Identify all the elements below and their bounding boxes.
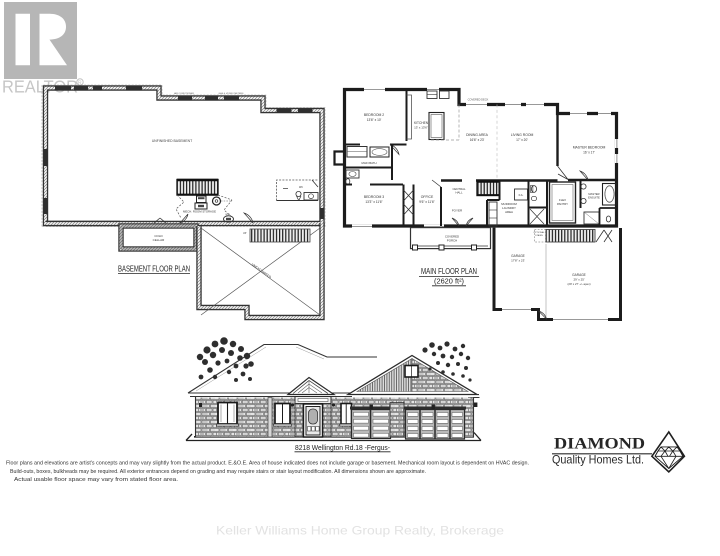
svg-text:AREA: AREA [505, 210, 513, 214]
svg-text:13'3" x 11'6": 13'3" x 11'6" [365, 200, 382, 204]
svg-text:17' x 20': 17' x 20' [516, 138, 528, 142]
svg-text:GAS & HYDRO METERS: GAS & HYDRO METERS [219, 92, 244, 95]
svg-text:MAIN BATH: MAIN BATH [361, 161, 376, 165]
svg-text:BEDROOM 2: BEDROOM 2 [364, 113, 384, 117]
svg-text:BASEMENT FLOOR PLAN: BASEMENT FLOOR PLAN [118, 265, 190, 274]
svg-text:WC: WC [299, 186, 303, 189]
svg-text:STAIRS: STAIRS [535, 234, 543, 237]
svg-text:Quality Homes Ltd.: Quality Homes Ltd. [552, 453, 644, 467]
svg-text:LIVING ROOM: LIVING ROOM [511, 133, 534, 137]
svg-text:16' x 17': 16' x 17' [583, 151, 595, 155]
svg-text:MASTER: MASTER [588, 192, 599, 196]
svg-text:Actual usable floor space may: Actual usable floor space may vary from … [14, 477, 178, 483]
svg-text:OFFICE: OFFICE [421, 195, 434, 199]
svg-text:Build-outs, boxes, bulkheads m: Build-outs, boxes, bulkheads may be requ… [10, 469, 426, 475]
svg-text:F.A.: F.A. [519, 193, 524, 197]
svg-text:17'8" x 23': 17'8" x 23' [511, 259, 525, 263]
svg-text:13'6" x 10': 13'6" x 10' [367, 118, 382, 122]
svg-text:W.H.: W.H. [225, 214, 231, 217]
svg-text:PORCH: PORCH [447, 239, 457, 243]
svg-text:AIR CONDITIONER: AIR CONDITIONER [174, 92, 194, 95]
svg-text:MASTER BEDROOM: MASTER BEDROOM [573, 146, 606, 150]
svg-text:DIAMOND: DIAMOND [554, 436, 645, 453]
svg-text:UNFINISHED BASEMENT: UNFINISHED BASEMENT [152, 139, 192, 143]
svg-text:FOYER: FOYER [452, 209, 463, 213]
svg-text:BEDROOM 3: BEDROOM 3 [364, 195, 384, 199]
svg-text:GARAGE: GARAGE [572, 273, 586, 277]
svg-text:PANTRY: PANTRY [557, 202, 568, 206]
svg-text:Keller Williams Home Group R: Keller Williams Home Group Realty, Broke… [216, 524, 504, 538]
svg-text:DINING AREA: DINING AREA [466, 133, 489, 137]
svg-text:CELLAR: CELLAR [153, 238, 166, 242]
svg-text:9'6" x 11'6": 9'6" x 11'6" [419, 200, 434, 204]
svg-text:(2620 ft²): (2620 ft²) [434, 279, 464, 286]
svg-text:13' x 13'6": 13' x 13'6" [414, 126, 428, 130]
svg-text:Floor plans and elevations are: Floor plans and elevations are artist's … [6, 461, 529, 467]
svg-text:MAIN FLOOR PLAN: MAIN FLOOR PLAN [421, 267, 477, 276]
svg-text:HALL: HALL [456, 191, 463, 195]
svg-text:COVERED DECK: COVERED DECK [468, 98, 489, 102]
svg-text:OPTIONAL: OPTIONAL [533, 231, 545, 234]
svg-text:8218 Wellington Rd.18 -Fergus-: 8218 Wellington Rd.18 -Fergus- [295, 443, 390, 452]
svg-text:UP: UP [243, 232, 247, 235]
svg-text:ENSUITE: ENSUITE [588, 196, 600, 200]
svg-text:MECH. ROOM STORAGE: MECH. ROOM STORAGE [183, 210, 216, 214]
svg-text:16'6" x 23': 16'6" x 23' [470, 138, 485, 142]
svg-text:GARAGE: GARAGE [511, 254, 525, 258]
svg-text:(29' x 27' +/- apex): (29' x 27' +/- apex) [567, 282, 590, 286]
svg-text:KITCHEN: KITCHEN [414, 121, 429, 125]
